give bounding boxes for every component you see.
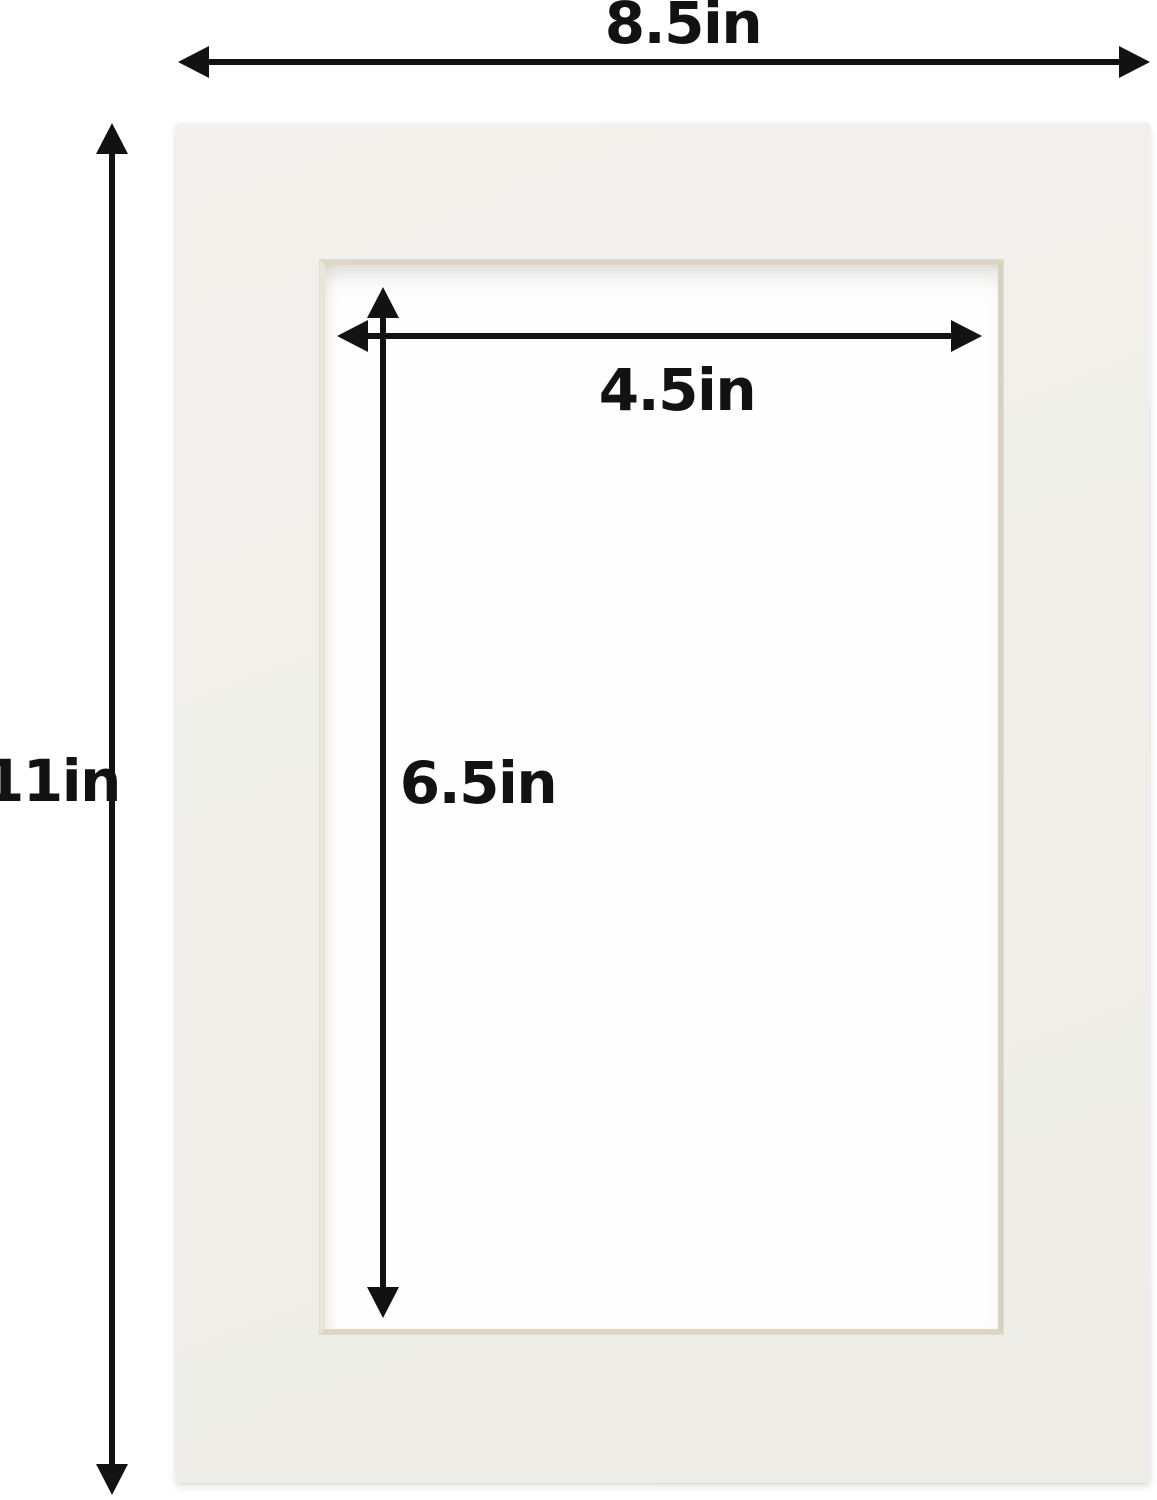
arrowhead-right-icon (1119, 46, 1150, 78)
opening-width-arrow (337, 320, 982, 352)
arrowhead-down-icon (96, 1464, 128, 1495)
mat-dimension-diagram: 8.5in 11in 4.5in 6.5in (0, 0, 1157, 1500)
opening-height-arrow (367, 287, 399, 1318)
arrowhead-right-icon (951, 320, 982, 352)
arrow-shaft (202, 59, 1126, 65)
outer-width-label: 8.5in (605, 0, 761, 52)
arrow-shaft (361, 333, 958, 339)
arrow-shaft (380, 311, 386, 1294)
arrowhead-down-icon (367, 1287, 399, 1318)
opening-height-label: 6.5in (400, 754, 556, 812)
outer-height-label: 11in (0, 752, 120, 810)
opening-width-label: 4.5in (599, 361, 755, 419)
